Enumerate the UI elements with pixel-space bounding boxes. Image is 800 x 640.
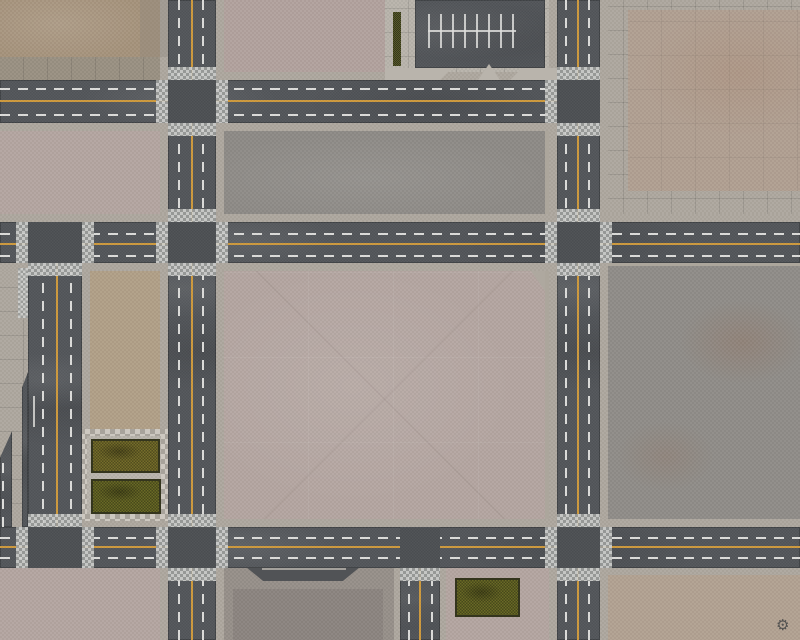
layer-markings: ⚙ [0, 0, 800, 640]
city-mat: ⚙ [0, 0, 800, 640]
road-v1-white-mark [33, 396, 35, 427]
maker-gear-logo-icon: ⚙ [776, 618, 789, 633]
